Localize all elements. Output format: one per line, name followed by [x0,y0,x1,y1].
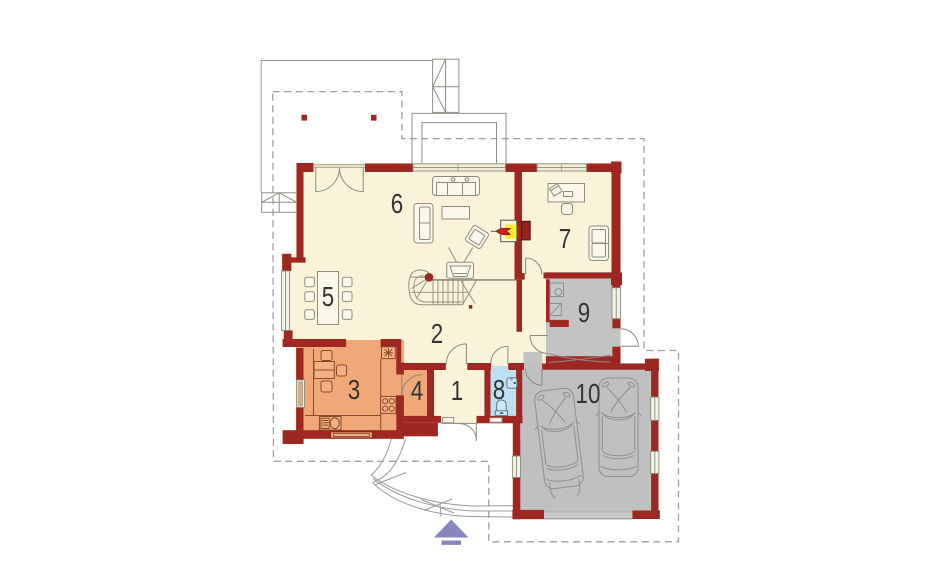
svg-text:9: 9 [578,298,590,329]
svg-text:1: 1 [451,376,463,407]
svg-text:2: 2 [431,319,443,350]
svg-text:4: 4 [411,376,423,407]
svg-text:6: 6 [391,189,403,220]
svg-text:3: 3 [348,375,360,406]
svg-text:5: 5 [322,282,334,313]
svg-text:8: 8 [493,375,505,406]
svg-text:7: 7 [559,224,571,255]
svg-text:10: 10 [576,379,601,410]
